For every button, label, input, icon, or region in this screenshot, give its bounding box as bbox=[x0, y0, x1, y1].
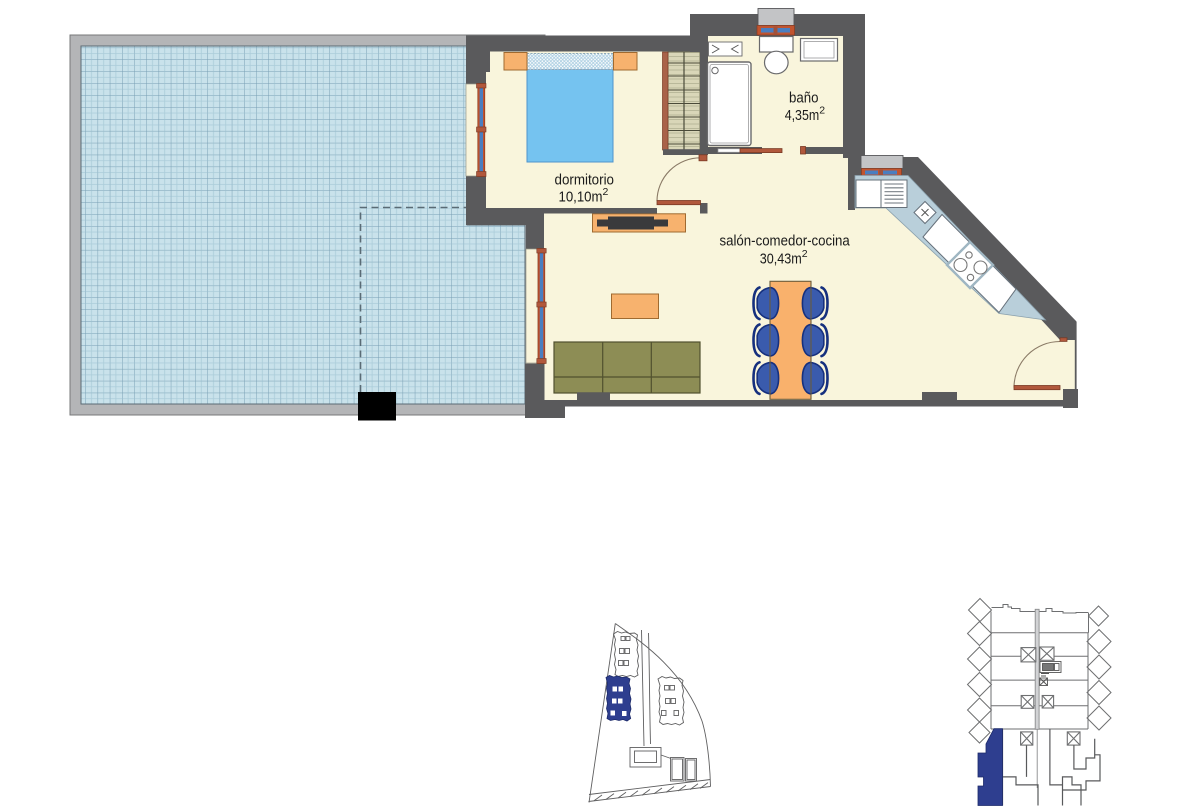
svg-text:baño: baño bbox=[789, 90, 819, 107]
svg-text:salón-comedor-cocina: salón-comedor-cocina bbox=[720, 233, 851, 250]
svg-text:4,35m2: 4,35m2 bbox=[785, 105, 826, 125]
svg-text:10,10m2: 10,10m2 bbox=[559, 186, 609, 206]
svg-text:30,43m2: 30,43m2 bbox=[760, 248, 808, 268]
